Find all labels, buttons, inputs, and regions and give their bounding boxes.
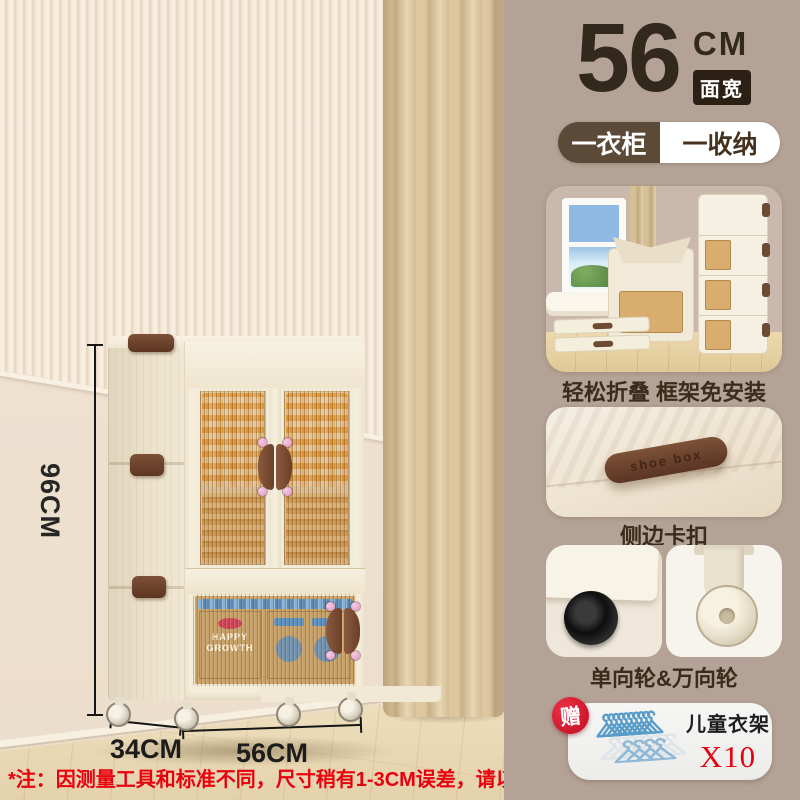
feature-panel-wheels	[546, 545, 782, 657]
side-clip-closeup-icon: shoe box	[602, 434, 729, 485]
clip-embossed-text: shoe box	[629, 446, 704, 473]
universal-wheel-icon	[696, 585, 758, 647]
feature-caption-wheels: 单向轮&万向轮	[546, 661, 782, 693]
curtain	[383, 0, 505, 717]
door-handles-lower	[325, 602, 361, 660]
cabinet-top-frame	[185, 342, 365, 388]
slogan-pill: 一衣柜 一收纳	[558, 122, 780, 163]
cabinet-side-panel	[108, 342, 184, 700]
handle-pin	[351, 602, 360, 611]
gift-card: 儿童衣架 X10	[568, 703, 772, 780]
room-scene: HAPPY GROWTH	[0, 0, 506, 800]
handle-icon	[276, 444, 292, 490]
handle-pin	[283, 438, 292, 447]
demo-folded-flat-stack	[553, 316, 650, 359]
gift-quantity: X10	[686, 739, 770, 775]
size-unit: CM	[693, 25, 751, 63]
depth-value: 34CM	[106, 734, 186, 765]
caster-wheel	[276, 702, 301, 727]
hanging-clothes	[286, 393, 348, 487]
caster-wheel	[174, 706, 199, 731]
folded-clothes	[202, 493, 264, 563]
width-dimension-line	[182, 724, 362, 732]
measurement-note: *注：因测量工具和标准不同，尺寸稍有1-3CM误差，请以实物为准	[8, 763, 500, 792]
door-handles-upper	[257, 438, 293, 496]
handle-icon	[326, 608, 342, 654]
feature-panel-clip: shoe box	[546, 407, 782, 517]
caster-wheel	[106, 702, 131, 727]
box-text-line2: GROWTH	[200, 643, 260, 654]
universal-wheel-image	[666, 545, 782, 657]
caster-wheel	[338, 697, 363, 722]
feature-caption-folding: 轻松折叠 框架免安装	[546, 375, 782, 407]
handle-pin	[351, 651, 360, 660]
handle-icon	[258, 444, 274, 490]
product-poster: HAPPY GROWTH	[0, 0, 800, 800]
slogan-right: 一收纳	[660, 122, 780, 163]
cabinet-front: HAPPY GROWTH	[184, 342, 364, 700]
slogan-left: 一衣柜	[558, 122, 660, 163]
demo-stacked-cabinet	[698, 194, 768, 354]
size-header: 56 CM 面宽	[576, 12, 751, 105]
size-tag-badge: 面宽	[693, 70, 751, 105]
side-clip-icon	[130, 454, 164, 476]
handle-icon	[344, 608, 360, 654]
size-number: 56	[576, 12, 680, 105]
handle-pin	[326, 651, 335, 660]
hangers-icon	[580, 707, 686, 776]
product-cabinet: HAPPY GROWTH	[108, 336, 364, 736]
side-clip-icon	[128, 334, 174, 352]
side-clip-icon	[132, 576, 166, 598]
height-value: 96CM	[17, 459, 83, 543]
handle-pin	[326, 602, 335, 611]
handle-pin	[258, 438, 267, 447]
handle-pin	[283, 487, 292, 496]
handle-pin	[258, 487, 267, 496]
info-sidebar: 56 CM 面宽 一衣柜 一收纳 轻松折叠 框	[504, 0, 800, 800]
height-dimension-line	[94, 344, 96, 716]
cabinet-mid-frame	[185, 568, 365, 594]
hanging-clothes	[202, 393, 264, 487]
directional-wheel-icon	[564, 591, 618, 645]
gift-name: 儿童衣架	[686, 708, 770, 737]
box-sticker	[218, 618, 242, 629]
folded-clothes	[286, 493, 348, 563]
feature-panel-folding	[546, 186, 782, 372]
height-dimension-label: 96CM	[8, 468, 92, 534]
box-text-line1: HAPPY	[200, 632, 260, 643]
directional-wheel-image	[546, 545, 662, 657]
storage-box-left: HAPPY GROWTH	[199, 611, 261, 679]
